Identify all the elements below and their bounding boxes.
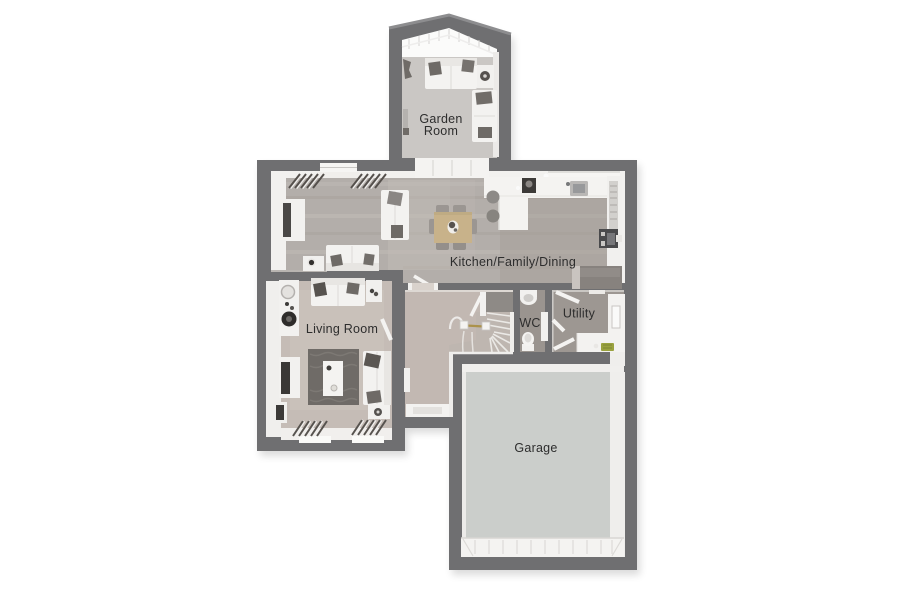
svg-text:Kitchen/Family/Dining: Kitchen/Family/Dining: [450, 255, 576, 269]
svg-text:Utility: Utility: [563, 307, 596, 321]
svg-text:Living Room: Living Room: [306, 322, 378, 336]
svg-text:Garage: Garage: [514, 441, 557, 455]
svg-text:Room: Room: [424, 124, 458, 138]
svg-text:WC: WC: [519, 316, 540, 330]
